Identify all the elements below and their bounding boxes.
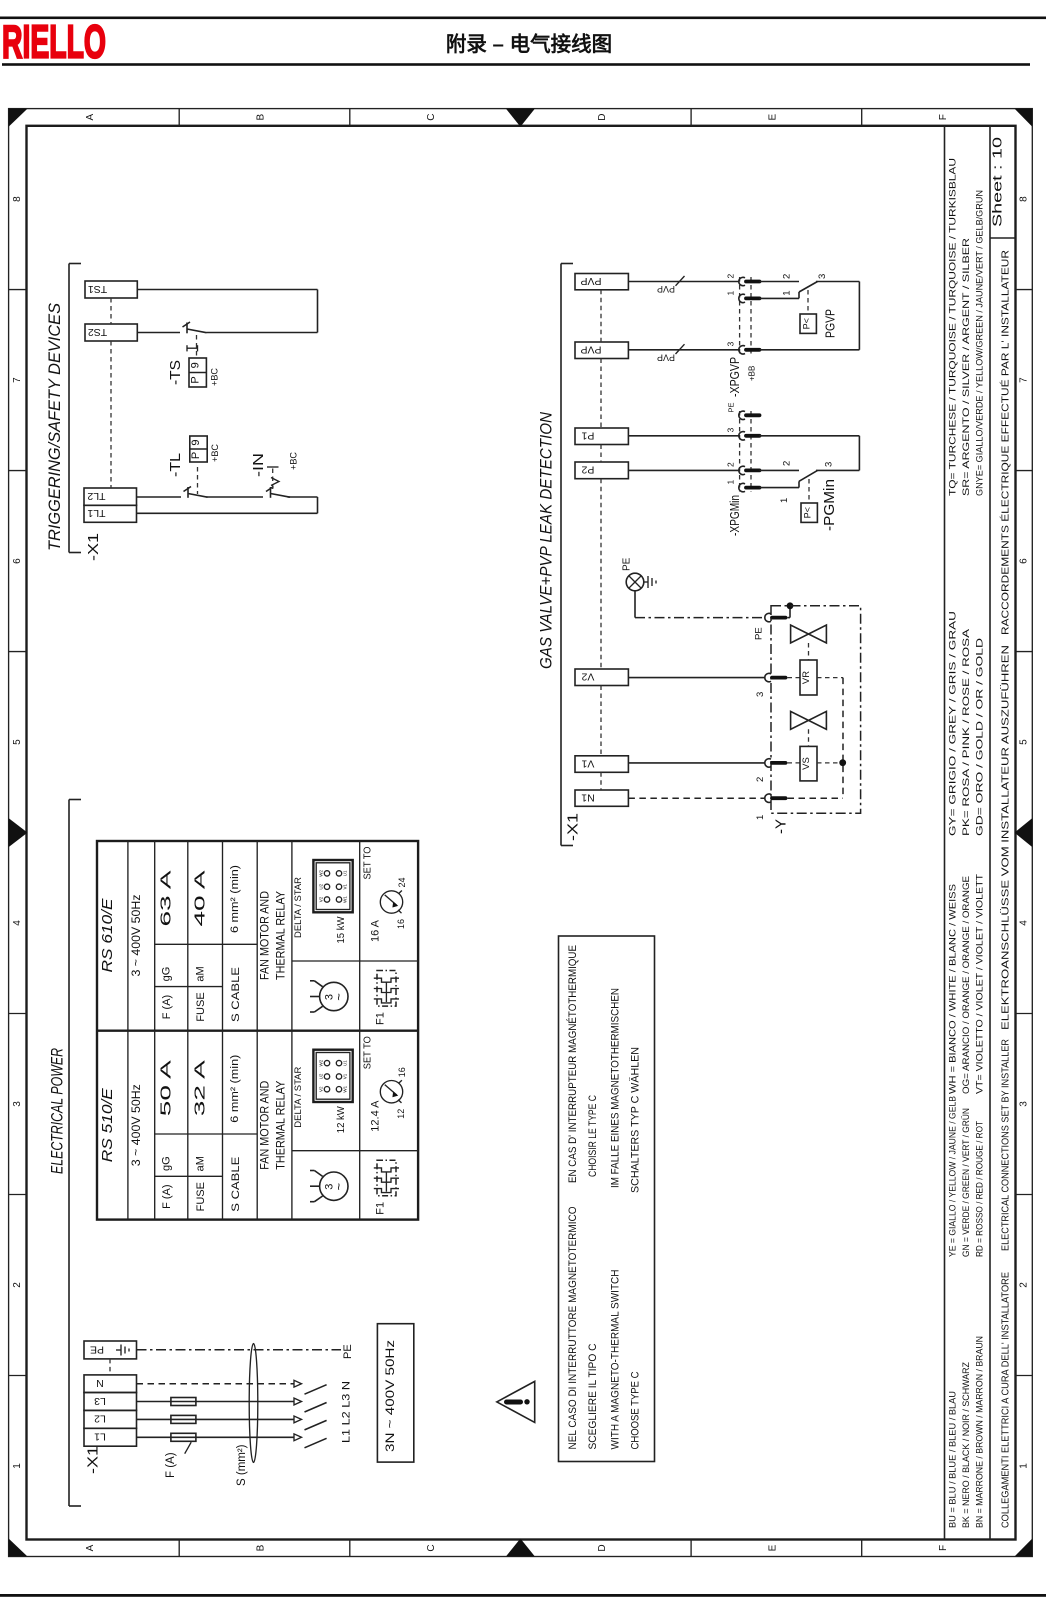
svg-text:TQ= TURCHESE / TURQUOISE / TUR: TQ= TURCHESE / TURQUOISE / TURQUOISE / T… bbox=[948, 158, 958, 496]
svg-text:RACCORDEMENTS ÉLECTRIQUE EFFEC: RACCORDEMENTS ÉLECTRIQUE EFFECTUÉ PAR L'… bbox=[998, 250, 1011, 635]
svg-text:BU = BLU / BLUE / BLEU / BLAU: BU = BLU / BLUE / BLEU / BLAU bbox=[948, 1391, 958, 1528]
svg-text:PVP: PVP bbox=[657, 284, 675, 294]
svg-text:RS 510/E: RS 510/E bbox=[99, 1087, 116, 1162]
svg-text:V1: V1 bbox=[343, 884, 348, 890]
svg-text:VT= VIOLETTO / VIOLET / VIOLET: VT= VIOLETTO / VIOLET / VIOLET / VIOLETT bbox=[975, 873, 985, 1094]
svg-text:3: 3 bbox=[726, 342, 736, 347]
svg-text:FAN MOTOR AND: FAN MOTOR AND bbox=[260, 891, 272, 980]
svg-text:SET TO: SET TO bbox=[363, 846, 374, 879]
svg-text:3 ~ 400V 50Hz: 3 ~ 400V 50Hz bbox=[131, 894, 143, 976]
svg-text:F: F bbox=[938, 114, 949, 120]
svg-text:V1: V1 bbox=[581, 757, 594, 769]
svg-text:S (mm²): S (mm²) bbox=[236, 1444, 248, 1486]
svg-text:GAS VALVE+PVP LEAK DETECTION: GAS VALVE+PVP LEAK DETECTION bbox=[536, 411, 555, 669]
svg-text:L2: L2 bbox=[94, 1413, 106, 1425]
svg-text:GY= GRIGIO / GREY / GRIS / GRA: GY= GRIGIO / GREY / GRIS / GRAU bbox=[948, 611, 958, 836]
svg-text:A: A bbox=[85, 114, 96, 121]
svg-text:2: 2 bbox=[726, 462, 736, 467]
svg-text:2: 2 bbox=[781, 274, 792, 279]
svg-text:3: 3 bbox=[1019, 1101, 1030, 1107]
svg-text:2: 2 bbox=[12, 1282, 23, 1288]
svg-text:F1: F1 bbox=[375, 1012, 387, 1025]
svg-text:-Y: -Y bbox=[773, 819, 789, 834]
svg-text:PGVP: PGVP bbox=[823, 309, 838, 338]
svg-text:4: 4 bbox=[12, 920, 23, 926]
svg-text:6 mm² (min): 6 mm² (min) bbox=[229, 865, 241, 933]
svg-text:3N ~ 400V 50Hz: 3N ~ 400V 50Hz bbox=[385, 1340, 397, 1452]
svg-text:Sheet : 10: Sheet : 10 bbox=[991, 137, 1005, 227]
svg-text:P<: P< bbox=[801, 318, 811, 329]
svg-text:U1: U1 bbox=[343, 1060, 348, 1066]
svg-text:GN = VERDE / GREEN / VERT / GR: GN = VERDE / GREEN / VERT / GRÜN bbox=[961, 1108, 971, 1257]
svg-text:-XPGMin: -XPGMin bbox=[727, 495, 742, 536]
svg-text:P1: P1 bbox=[581, 430, 594, 442]
svg-text:12.4 A: 12.4 A bbox=[370, 1100, 382, 1132]
svg-text:TL2: TL2 bbox=[87, 490, 105, 502]
svg-text:WITH A MAGNETO-THERMAL SWITCH: WITH A MAGNETO-THERMAL SWITCH bbox=[610, 1269, 622, 1449]
svg-text:8: 8 bbox=[1019, 196, 1030, 202]
svg-text:W2: W2 bbox=[318, 1059, 323, 1066]
svg-text:-X1: -X1 bbox=[566, 813, 582, 841]
svg-text:DELTA / STAR: DELTA / STAR bbox=[293, 1067, 304, 1128]
svg-text:TL1: TL1 bbox=[87, 507, 105, 519]
svg-text:L1: L1 bbox=[94, 1431, 106, 1443]
svg-text:PE: PE bbox=[90, 1343, 104, 1355]
svg-text:CHOISIR LE TYPE C: CHOISIR LE TYPE C bbox=[587, 1095, 599, 1177]
svg-text:3: 3 bbox=[817, 274, 828, 279]
svg-text:V2: V2 bbox=[581, 671, 594, 683]
svg-text:FAN MOTOR AND: FAN MOTOR AND bbox=[260, 1081, 272, 1170]
svg-text:7: 7 bbox=[1019, 377, 1030, 383]
svg-text:2: 2 bbox=[781, 461, 792, 466]
svg-text:1: 1 bbox=[726, 480, 736, 485]
svg-text:P: P bbox=[190, 452, 202, 459]
svg-text:-TL: -TL bbox=[168, 453, 184, 477]
svg-text:16: 16 bbox=[396, 919, 406, 929]
svg-text:PVP: PVP bbox=[657, 352, 675, 362]
svg-text:L3: L3 bbox=[94, 1395, 106, 1407]
svg-text:gG: gG bbox=[161, 967, 173, 982]
svg-text:4: 4 bbox=[1019, 920, 1030, 926]
svg-text:SCEGLIERE IL TIPO C: SCEGLIERE IL TIPO C bbox=[587, 1343, 599, 1449]
svg-text:+BC: +BC bbox=[209, 368, 220, 386]
svg-text:12 kW: 12 kW bbox=[336, 1106, 347, 1134]
svg-text:U1: U1 bbox=[343, 870, 348, 876]
svg-text:TRIGGERING/SAFETY DEVICES: TRIGGERING/SAFETY DEVICES bbox=[45, 302, 64, 551]
svg-text:L1 L2 L3 N: L1 L2 L3 N bbox=[341, 1381, 353, 1443]
svg-text:PVP: PVP bbox=[580, 344, 601, 356]
svg-text:NEL CASO DI INTERRUTTORE MAGNE: NEL CASO DI INTERRUTTORE MAGNETOTERMICO bbox=[567, 1206, 579, 1449]
svg-text:P<: P< bbox=[802, 507, 812, 518]
svg-text:32 A: 32 A bbox=[192, 1060, 208, 1117]
svg-text:YE = GIALLO / YELLOW / JAUNE /: YE = GIALLO / YELLOW / JAUNE / GELB bbox=[948, 1096, 958, 1257]
svg-text:8: 8 bbox=[12, 196, 23, 202]
svg-text:gG: gG bbox=[161, 1156, 173, 1171]
svg-text:FUSE: FUSE bbox=[195, 1182, 207, 1211]
svg-text:-IN: -IN bbox=[251, 453, 267, 477]
svg-text:V2: V2 bbox=[318, 896, 323, 902]
svg-text:S CABLE: S CABLE bbox=[230, 967, 242, 1022]
svg-text:DELTA / STAR: DELTA / STAR bbox=[293, 877, 304, 938]
svg-text:ELECTRICAL CONNECTIONS SET BY: ELECTRICAL CONNECTIONS SET BY INSTALLER bbox=[999, 1039, 1011, 1251]
svg-text:F (A): F (A) bbox=[161, 1184, 173, 1208]
svg-text:1: 1 bbox=[726, 291, 736, 296]
svg-text:9: 9 bbox=[190, 439, 202, 445]
svg-text:3: 3 bbox=[12, 1101, 23, 1107]
svg-text:5: 5 bbox=[12, 739, 23, 745]
svg-text:12: 12 bbox=[396, 1109, 406, 1119]
svg-text:V1: V1 bbox=[343, 1073, 348, 1079]
svg-text:50 A: 50 A bbox=[158, 1060, 174, 1117]
svg-text:N1: N1 bbox=[581, 792, 595, 804]
svg-text:TS2: TS2 bbox=[88, 326, 107, 338]
svg-text:-XPGVP: -XPGVP bbox=[727, 357, 742, 397]
svg-text:BN = MARRONE / BROWN / MARRON: BN = MARRONE / BROWN / MARRON / BRAUN bbox=[975, 1336, 985, 1528]
svg-text:U2: U2 bbox=[318, 1073, 323, 1079]
svg-text:PK= ROSA / PINK / ROSE / ROSA: PK= ROSA / PINK / ROSE / ROSA bbox=[961, 629, 971, 836]
svg-text:B: B bbox=[256, 1544, 267, 1551]
svg-text:A: A bbox=[85, 1544, 96, 1551]
svg-text:F: F bbox=[938, 1545, 949, 1551]
svg-text:E: E bbox=[768, 114, 779, 121]
svg-text:+BC: +BC bbox=[210, 444, 221, 462]
svg-text:IM FALLE EINES MAGNETOTHERMISC: IM FALLE EINES MAGNETOTHERMISCHEN bbox=[610, 988, 622, 1188]
svg-text:RS 610/E: RS 610/E bbox=[99, 897, 116, 972]
svg-text:+BB: +BB bbox=[747, 366, 756, 381]
svg-text:3: 3 bbox=[726, 428, 736, 433]
svg-text:~: ~ bbox=[331, 993, 346, 1001]
svg-text:W1: W1 bbox=[343, 1085, 348, 1092]
svg-text:5: 5 bbox=[1019, 739, 1030, 745]
svg-text:V2: V2 bbox=[318, 1086, 323, 1092]
svg-text:VS: VS bbox=[801, 757, 812, 770]
svg-text:aM: aM bbox=[195, 966, 207, 981]
svg-text:3 ~ 400V 50Hz: 3 ~ 400V 50Hz bbox=[131, 1084, 143, 1166]
svg-text:P2: P2 bbox=[581, 464, 594, 476]
svg-text:F (A): F (A) bbox=[161, 995, 173, 1019]
svg-text:9: 9 bbox=[189, 362, 201, 368]
svg-text:1: 1 bbox=[12, 1463, 23, 1469]
svg-text:WH = BIANCO / WHITE / BLANC /: WH = BIANCO / WHITE / BLANC / WEISS bbox=[948, 884, 958, 1094]
svg-text:6: 6 bbox=[1019, 558, 1030, 564]
svg-text:EN CAS D' INTERRUPTEUR MAGNÉTO: EN CAS D' INTERRUPTEUR MAGNÉTOTHERMIQUE bbox=[566, 945, 579, 1183]
svg-text:15 kW: 15 kW bbox=[336, 916, 347, 944]
svg-text:1: 1 bbox=[755, 815, 766, 820]
svg-text:D: D bbox=[597, 114, 608, 121]
svg-text:PE: PE bbox=[727, 402, 736, 412]
svg-text:16: 16 bbox=[397, 1067, 407, 1077]
svg-text:C: C bbox=[426, 1544, 437, 1551]
svg-text:aM: aM bbox=[195, 1156, 207, 1171]
svg-text:1: 1 bbox=[779, 498, 790, 503]
svg-text:F (A): F (A) bbox=[165, 1452, 177, 1478]
svg-text:SCHALTERS TYP C WÄHLEN: SCHALTERS TYP C WÄHLEN bbox=[630, 1047, 642, 1193]
svg-text:RIELLO: RIELLO bbox=[2, 16, 106, 68]
svg-text:24: 24 bbox=[397, 877, 407, 887]
svg-text:B: B bbox=[256, 114, 267, 121]
svg-text:附录 – 电气接线图: 附录 – 电气接线图 bbox=[446, 32, 612, 56]
svg-text:PE: PE bbox=[622, 557, 633, 571]
svg-text:COLLEGAMENTI ELETTRICI A CURA: COLLEGAMENTI ELETTRICI A CURA DELL' INST… bbox=[999, 1272, 1011, 1528]
svg-text:2: 2 bbox=[1019, 1282, 1030, 1288]
svg-text:PE: PE bbox=[342, 1344, 354, 1359]
svg-text:2: 2 bbox=[755, 777, 766, 782]
svg-text:40 A: 40 A bbox=[192, 870, 208, 927]
svg-text:16 A: 16 A bbox=[370, 919, 382, 942]
svg-text:E: E bbox=[768, 1544, 779, 1551]
svg-text:3: 3 bbox=[823, 462, 834, 467]
svg-text:1: 1 bbox=[1019, 1463, 1030, 1469]
svg-text:PVP: PVP bbox=[580, 275, 601, 287]
svg-text:1: 1 bbox=[781, 291, 792, 296]
svg-text:W2: W2 bbox=[318, 870, 323, 877]
svg-text:ELECTRICAL POWER: ELECTRICAL POWER bbox=[47, 1048, 66, 1174]
svg-text:~: ~ bbox=[331, 1182, 346, 1190]
svg-text:THERMAL RELAY: THERMAL RELAY bbox=[276, 1080, 288, 1169]
svg-text:W1: W1 bbox=[343, 896, 348, 903]
svg-text:D: D bbox=[597, 1544, 608, 1551]
svg-text:BK = NERO / BLACK / NOIR / SCH: BK = NERO / BLACK / NOIR / SCHWARZ bbox=[961, 1362, 971, 1528]
svg-text:F1: F1 bbox=[375, 1202, 387, 1215]
svg-text:THERMAL RELAY: THERMAL RELAY bbox=[276, 891, 288, 980]
svg-text:-X1: -X1 bbox=[86, 533, 102, 561]
svg-text:GNYE= GIALLO/VERDE / YELLOW/GR: GNYE= GIALLO/VERDE / YELLOW/GREEN / JAUN… bbox=[975, 190, 985, 496]
svg-text:6 mm² (min): 6 mm² (min) bbox=[229, 1055, 241, 1123]
svg-text:-PGMin: -PGMin bbox=[822, 479, 838, 531]
svg-text:6: 6 bbox=[12, 558, 23, 564]
svg-text:SET TO: SET TO bbox=[363, 1036, 374, 1069]
svg-text:GD= ORO / GOLD / OR / GOLD: GD= ORO / GOLD / OR / GOLD bbox=[975, 637, 985, 836]
svg-text:ELEKTROANSCHLÜSSE VOM INSTALLA: ELEKTROANSCHLÜSSE VOM INSTALLATEUR AUSZU… bbox=[999, 645, 1011, 1030]
svg-text:PE: PE bbox=[753, 627, 764, 640]
svg-text:-TS: -TS bbox=[168, 360, 184, 385]
svg-text:-X1: -X1 bbox=[86, 1446, 102, 1474]
svg-text:SR= ARGENTO / SILVER / ARGENT: SR= ARGENTO / SILVER / ARGENT / SILBER bbox=[961, 237, 971, 496]
svg-text:N: N bbox=[96, 1377, 104, 1389]
svg-text:+BC: +BC bbox=[288, 452, 299, 470]
svg-text:63 A: 63 A bbox=[158, 870, 174, 927]
svg-text:TS1: TS1 bbox=[88, 283, 107, 295]
svg-text:VR: VR bbox=[801, 671, 812, 684]
svg-text:3: 3 bbox=[755, 692, 766, 697]
svg-text:C: C bbox=[426, 114, 437, 121]
svg-text:U2: U2 bbox=[318, 883, 323, 889]
svg-text:OG= ARANCIO / ORANGE / ORANGE: OG= ARANCIO / ORANGE / ORANGE / ORANGE bbox=[961, 876, 971, 1094]
svg-text:RD = ROSSO / RED / ROUGE / ROT: RD = ROSSO / RED / ROUGE / ROT bbox=[975, 1121, 985, 1257]
svg-text:S CABLE: S CABLE bbox=[230, 1157, 242, 1212]
svg-text:P: P bbox=[189, 376, 201, 383]
svg-text:7: 7 bbox=[12, 377, 23, 383]
svg-text:FUSE: FUSE bbox=[195, 992, 207, 1021]
svg-text:CHOOSE TYPE C: CHOOSE TYPE C bbox=[630, 1371, 642, 1449]
svg-text:2: 2 bbox=[726, 274, 736, 279]
